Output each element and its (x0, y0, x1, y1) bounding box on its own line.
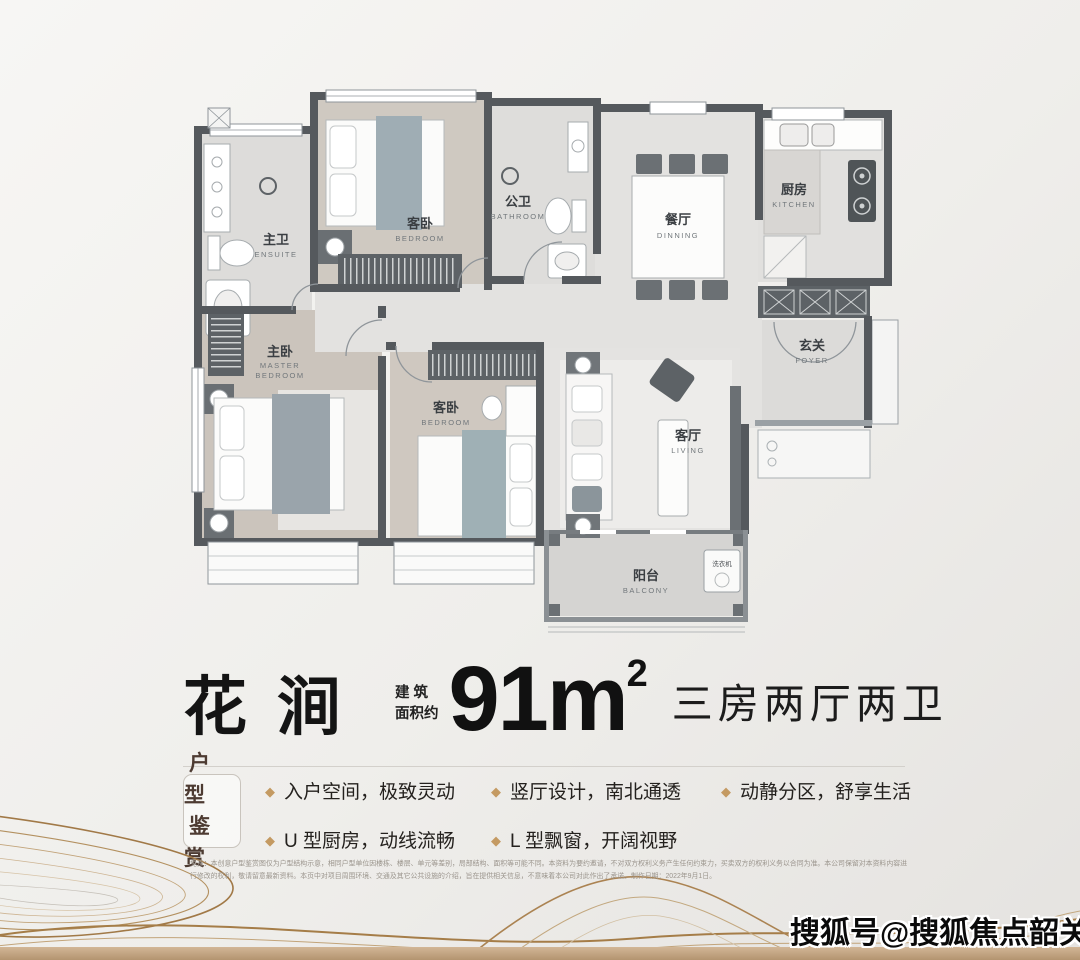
diamond-bullet-icon: ◆ (491, 784, 501, 799)
area-label: 建 筑 面积约 (395, 683, 439, 727)
area-label-line1: 建 筑 (395, 683, 439, 705)
room-label-dining-cn: 餐厅 (664, 212, 691, 227)
feature-item: ◆动静分区，舒享生活 (721, 777, 961, 804)
room-label-living-en: LIVING (671, 446, 705, 455)
feature-text: 入户空间，极致灵动 (284, 782, 455, 803)
area-exponent: 2 (627, 653, 648, 695)
title-row: 花涧 建 筑 面积约 91m2 三房两厅两卫 (183, 658, 923, 740)
room-label-bedroom-second-cn: 客卧 (433, 400, 459, 415)
room-label-washer: 洗衣机 (712, 559, 732, 568)
disclaimer-text: 免责：本创意户型鉴赏图仅为户型结构示意，相同户型单位因楼栋、楼层、单元等差别，局… (190, 857, 907, 883)
plan-title: 花涧 (183, 676, 371, 740)
room-label-master-en2: BEDROOM (255, 371, 304, 380)
poster-page: 主卫 ENSUITE 客卧 BEDROOM 公卫 BATHROOM 餐厅 DIN… (0, 0, 1080, 960)
bedroom-top-furniture (318, 116, 462, 288)
room-label-balcony-en: BALCONY (623, 586, 669, 595)
room-label-foyer-en: FOYER (795, 356, 828, 365)
hallway-cabinet (758, 286, 870, 318)
diamond-bullet-icon: ◆ (721, 784, 731, 799)
dining-furniture (632, 154, 728, 300)
separator-line (183, 766, 905, 767)
feature-text: 竖厅设计，南北通透 (510, 782, 681, 803)
feature-item: ◆入户空间，极致灵动 (265, 777, 491, 804)
room-label-bedroom-top-en: BEDROOM (395, 234, 444, 243)
room-label-bedroom-second-en: BEDROOM (421, 418, 470, 427)
room-label-ensuite-en: ENSUITE (254, 250, 297, 259)
room-label-foyer-cn: 玄关 (799, 338, 825, 353)
room-label-dining-en: DINNING (657, 231, 699, 240)
area-number: 91m (449, 648, 627, 750)
feature-item: ◆竖厅设计，南北通透 (491, 777, 721, 804)
room-label-master-en1: MASTER (260, 361, 300, 370)
layout-description: 三房两厅两卫 (672, 670, 948, 730)
area-value: 91m2 (449, 659, 648, 740)
room-label-living-cn: 客厅 (675, 428, 701, 443)
watermark-text: 搜狐号@搜狐焦点韶关站 (790, 908, 1080, 952)
room-label-kitchen-cn: 厨房 (781, 182, 807, 197)
room-label-kitchen-en: KITCHEN (772, 200, 815, 209)
foyer-porch (758, 430, 870, 478)
feature-text: 动静分区，舒享生活 (740, 782, 911, 803)
features-badge-line1: 户型 (184, 748, 240, 811)
room-label-balcony-cn: 阳台 (633, 568, 659, 583)
room-label-bedroom-top-cn: 客卧 (407, 216, 433, 231)
room-label-ensuite-cn: 主卫 (263, 232, 289, 247)
floor-plan: 主卫 ENSUITE 客卧 BEDROOM 公卫 BATHROOM 餐厅 DIN… (180, 68, 930, 653)
room-label-bathroom-cn: 公卫 (505, 194, 531, 209)
room-label-bathroom-en: BATHROOM (491, 212, 546, 221)
diamond-bullet-icon: ◆ (265, 784, 275, 799)
room-label-master-cn: 主卧 (267, 344, 293, 359)
bedroom-second-furniture (418, 350, 540, 542)
area-label-line2: 面积约 (395, 704, 439, 726)
